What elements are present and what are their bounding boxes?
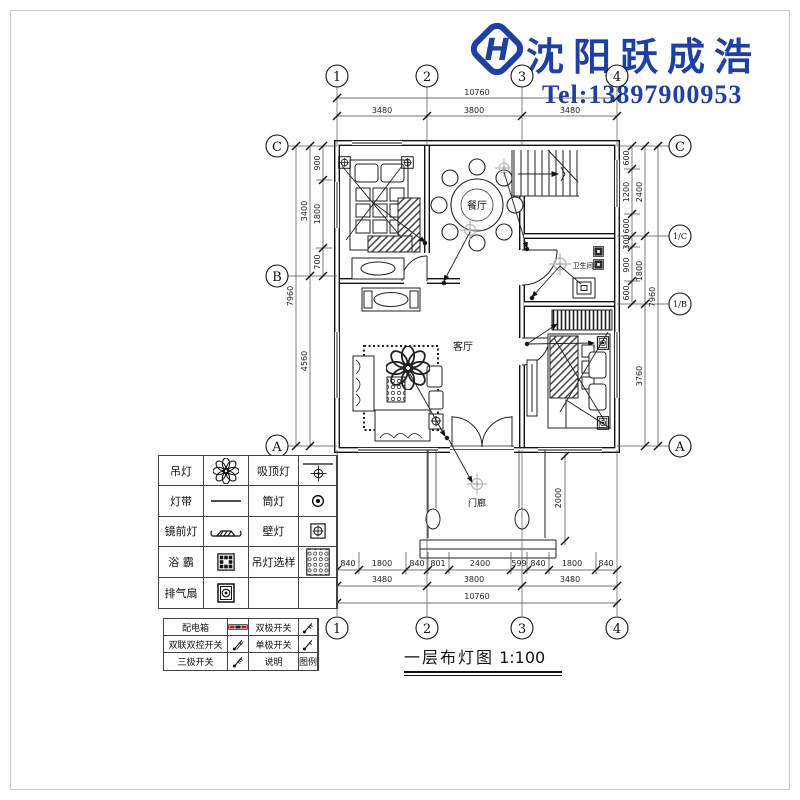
legend-label: 双极开关 xyxy=(249,619,299,636)
svg-text:840: 840 xyxy=(598,559,613,568)
legend-label: 筒灯 xyxy=(249,486,299,516)
mirror-lamp-icon xyxy=(204,517,249,547)
grid-label: 2 xyxy=(423,622,431,637)
svg-text:801: 801 xyxy=(430,559,445,568)
single-pole-switch-icon xyxy=(299,636,318,653)
grid-label: 2 xyxy=(423,70,431,85)
svg-text:2400: 2400 xyxy=(635,182,644,202)
legend-label: 排气扇 xyxy=(159,578,204,608)
grid-label: 1/C xyxy=(673,232,687,241)
legend-label: 图例 xyxy=(299,653,318,670)
double-pole-switch-icon xyxy=(299,619,318,636)
exhaust-fan-icon xyxy=(204,578,249,608)
drawing-sheet: H 沈阳跃成浩 Tel:13897900953 xyxy=(0,0,800,800)
legend-label: 壁灯 xyxy=(249,517,299,547)
ceiling-lamp-icon xyxy=(299,456,337,486)
svg-text:1800: 1800 xyxy=(313,204,322,224)
drawing-title-text: 一层布灯图 xyxy=(404,648,494,667)
svg-text:10760: 10760 xyxy=(464,88,489,97)
triple-pole-switch-icon xyxy=(228,653,249,670)
svg-text:700: 700 xyxy=(313,254,322,269)
dimensions-left: 7960 3400 4560 900 1800 700 xyxy=(286,142,332,450)
drawing-title: 一层布灯图 1:100 xyxy=(404,644,574,676)
svg-text:840: 840 xyxy=(530,559,545,568)
grid-label: C xyxy=(675,140,685,155)
svg-text:2000: 2000 xyxy=(554,488,563,508)
legend-label: 镜前灯 xyxy=(159,517,204,547)
legend-label: 单极开关 xyxy=(249,636,299,653)
dimensions-top: 10760 3480 3800 3480 xyxy=(333,88,621,120)
legend-empty-cell xyxy=(249,578,299,608)
svg-text:900: 900 xyxy=(622,257,631,272)
chandelier-sample-icon xyxy=(299,547,337,577)
svg-text:1800: 1800 xyxy=(372,559,392,568)
dimensions-bottom: 840 1800 840 801 2400 599 840 1800 840 3… xyxy=(333,552,621,607)
svg-text:600: 600 xyxy=(622,218,631,233)
svg-text:3800: 3800 xyxy=(464,575,484,584)
legend-label: 双联双控开关 xyxy=(164,636,228,653)
stairs xyxy=(512,150,579,196)
bath-heater-icon xyxy=(204,547,249,577)
bedroom1-furniture xyxy=(339,157,420,279)
legend-label: 说明 xyxy=(249,653,299,670)
svg-text:1200: 1200 xyxy=(622,182,631,202)
svg-text:3480: 3480 xyxy=(560,575,580,584)
legend-empty-cell xyxy=(299,578,337,608)
svg-text:3480: 3480 xyxy=(372,106,392,115)
distribution-box-icon xyxy=(228,619,249,636)
svg-text:3480: 3480 xyxy=(560,106,580,115)
grid-label: 1 xyxy=(333,622,341,637)
light-strip-icon xyxy=(204,486,249,516)
grid-label: 1/B xyxy=(673,300,687,309)
legend-label: 吊灯选样 xyxy=(249,547,299,577)
chandelier-icon xyxy=(204,456,249,486)
dual-control-switch-icon xyxy=(228,636,249,653)
ceiling-lamp-icon-bath xyxy=(549,253,571,275)
legend-label: 灯带 xyxy=(159,486,204,516)
svg-text:1800: 1800 xyxy=(562,559,582,568)
svg-text:10760: 10760 xyxy=(464,592,489,601)
svg-text:3400: 3400 xyxy=(300,201,309,221)
wall-lamp-icon xyxy=(299,517,337,547)
grid-label: 3 xyxy=(518,70,526,85)
grid-label: 4 xyxy=(613,622,621,637)
grid-label: A xyxy=(674,440,685,455)
living-furniture xyxy=(353,346,443,441)
porch xyxy=(420,450,556,558)
svg-text:3800: 3800 xyxy=(464,106,484,115)
legend-label: 配电箱 xyxy=(164,619,228,636)
room-label-dining: 餐厅 xyxy=(467,199,487,212)
floor-plan-drawing: 餐厅 客厅 卫生间 xyxy=(0,0,800,800)
svg-text:3760: 3760 xyxy=(635,366,644,386)
grid-label: C xyxy=(272,140,282,155)
bathroom-fixtures xyxy=(573,247,603,298)
dimension-porch: 2000 xyxy=(554,452,569,545)
dimensions-right: 600 1200 600 300 900 600 2400 1800 3760 … xyxy=(622,142,662,450)
ceiling-lamp-icon-porch xyxy=(467,474,487,494)
room-label-porch: 门廊 xyxy=(468,497,486,509)
drawing-scale: 1:100 xyxy=(499,648,545,667)
chandelier-icon-living xyxy=(386,346,430,390)
title-underline2 xyxy=(404,675,562,676)
svg-text:840: 840 xyxy=(340,559,355,568)
svg-text:3480: 3480 xyxy=(372,575,392,584)
svg-text:600: 600 xyxy=(622,285,631,300)
svg-text:4560: 4560 xyxy=(300,351,309,371)
room-label-bath: 卫生间 xyxy=(573,261,594,270)
grid-label: 3 xyxy=(518,622,526,637)
title-underline xyxy=(404,671,562,673)
svg-text:1800: 1800 xyxy=(635,261,644,281)
grid-label: A xyxy=(271,440,282,455)
legend-label: 浴 霸 xyxy=(159,547,204,577)
grid-label: B xyxy=(272,270,282,285)
svg-text:7960: 7960 xyxy=(648,287,657,307)
svg-text:599: 599 xyxy=(511,559,526,568)
svg-text:300: 300 xyxy=(622,234,631,249)
svg-text:840: 840 xyxy=(409,559,424,568)
legend-label: 三极开关 xyxy=(164,653,228,670)
grid-label: 4 xyxy=(613,70,621,85)
svg-text:7960: 7960 xyxy=(286,286,295,306)
downlight-icon xyxy=(299,486,337,516)
room-label-living: 客厅 xyxy=(453,340,473,353)
grid-label: 1 xyxy=(333,70,341,85)
svg-text:600: 600 xyxy=(622,150,631,165)
lighting-legend-table: 吊灯 吸顶灯 灯带 筒灯 镜前灯 壁灯 浴 霸 吊灯选样 排气扇 xyxy=(158,455,338,609)
svg-text:2400: 2400 xyxy=(470,559,490,568)
svg-text:900: 900 xyxy=(313,155,322,170)
legend-label: 吸顶灯 xyxy=(249,456,299,486)
console-table xyxy=(362,288,420,311)
legend-label: 吊灯 xyxy=(159,456,204,486)
electric-legend-table: 配电箱 双极开关 双联双控开关 单极开关 三极开关 说明 图例 xyxy=(163,618,319,671)
